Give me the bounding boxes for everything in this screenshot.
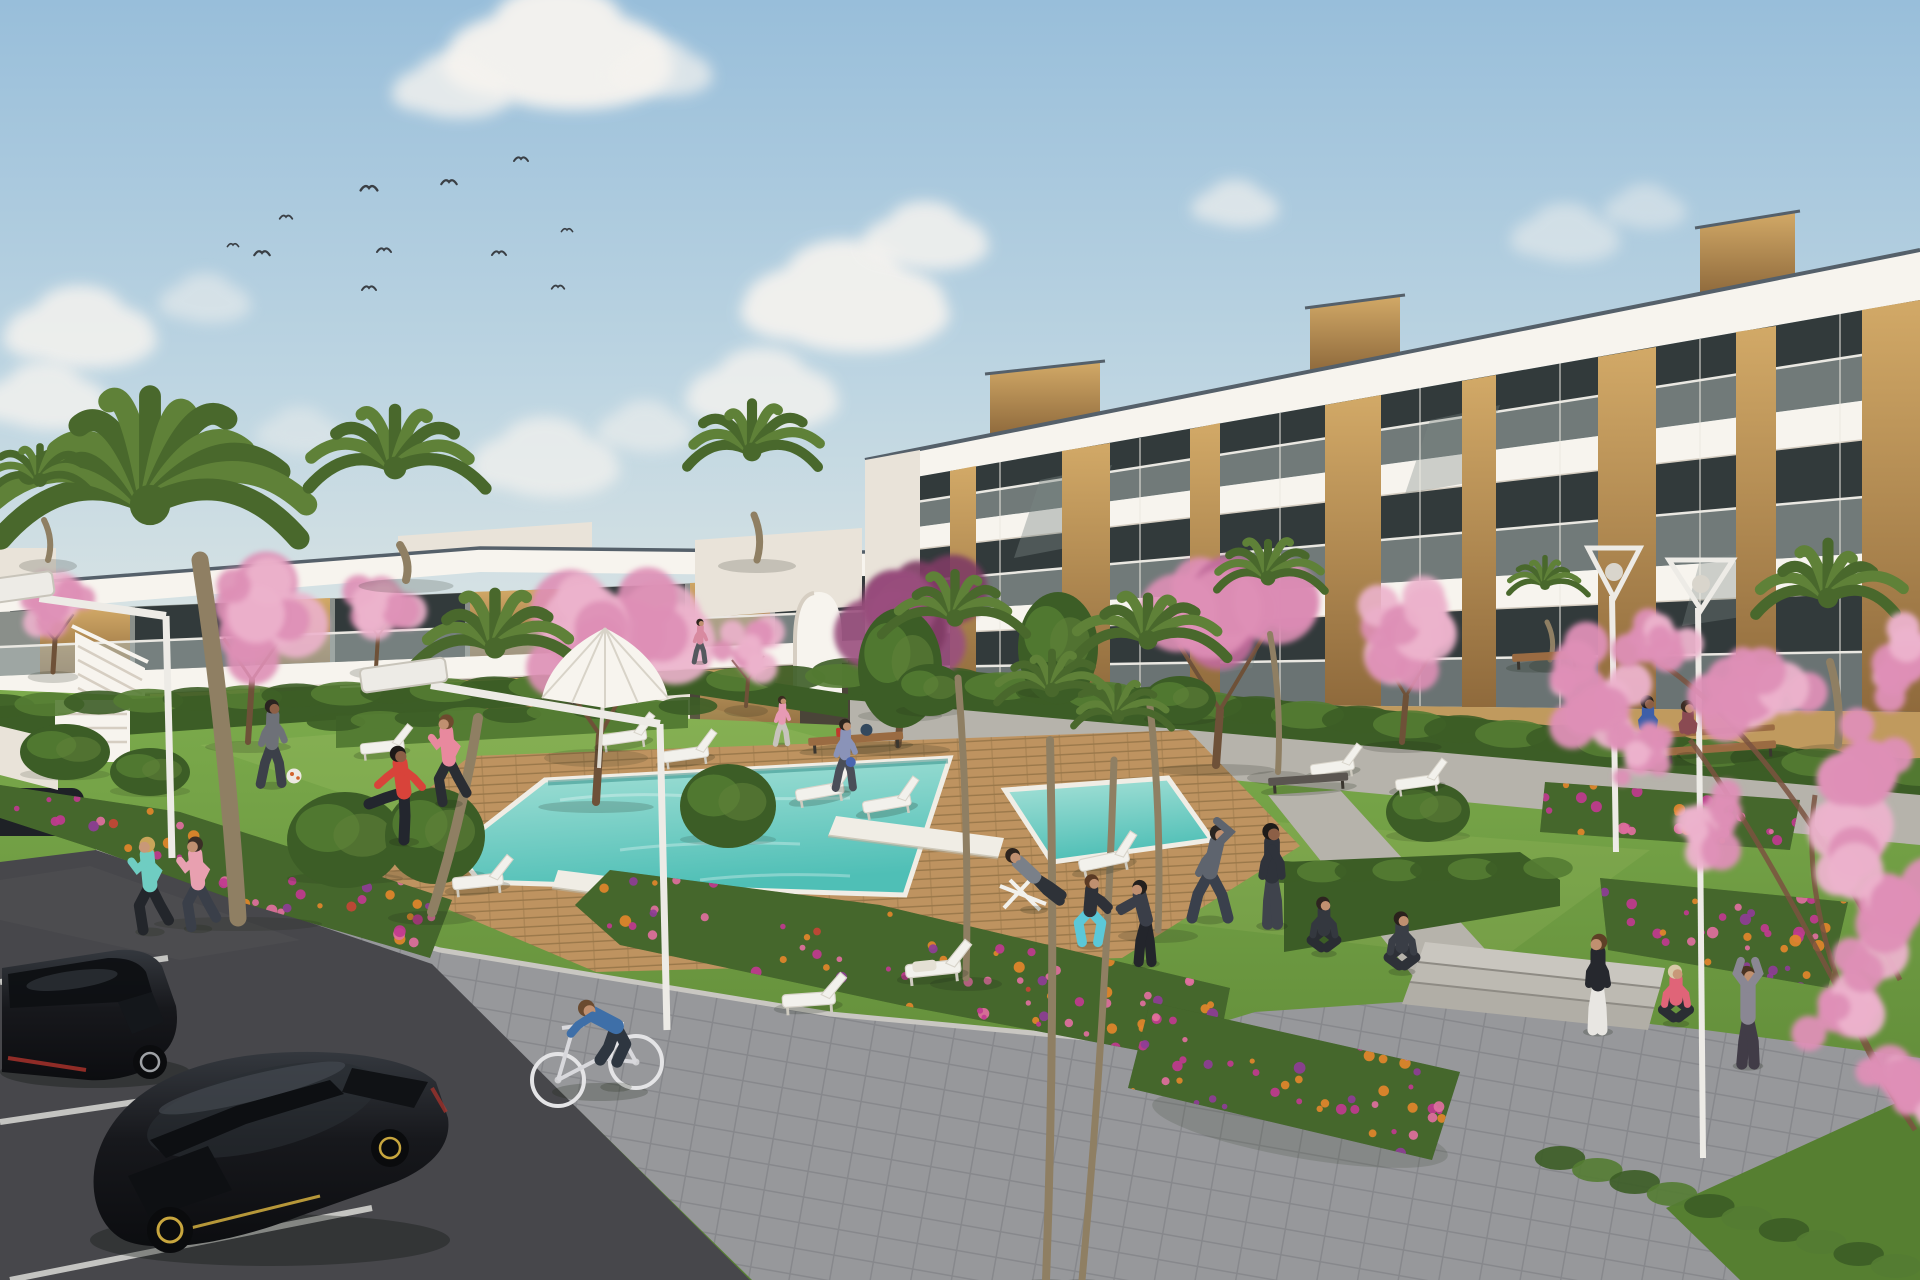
- football: [287, 769, 302, 784]
- hedge-bush: [1523, 857, 1573, 879]
- scene-svg: [0, 0, 1920, 1280]
- hedge-bush: [659, 697, 718, 715]
- hedge-bush: [1871, 1254, 1920, 1278]
- bush: [110, 748, 190, 797]
- bush: [20, 724, 110, 780]
- bush: [680, 764, 776, 848]
- bush: [896, 664, 964, 717]
- car-sedan: [0, 950, 190, 1088]
- rendered-scene: [0, 0, 1920, 1280]
